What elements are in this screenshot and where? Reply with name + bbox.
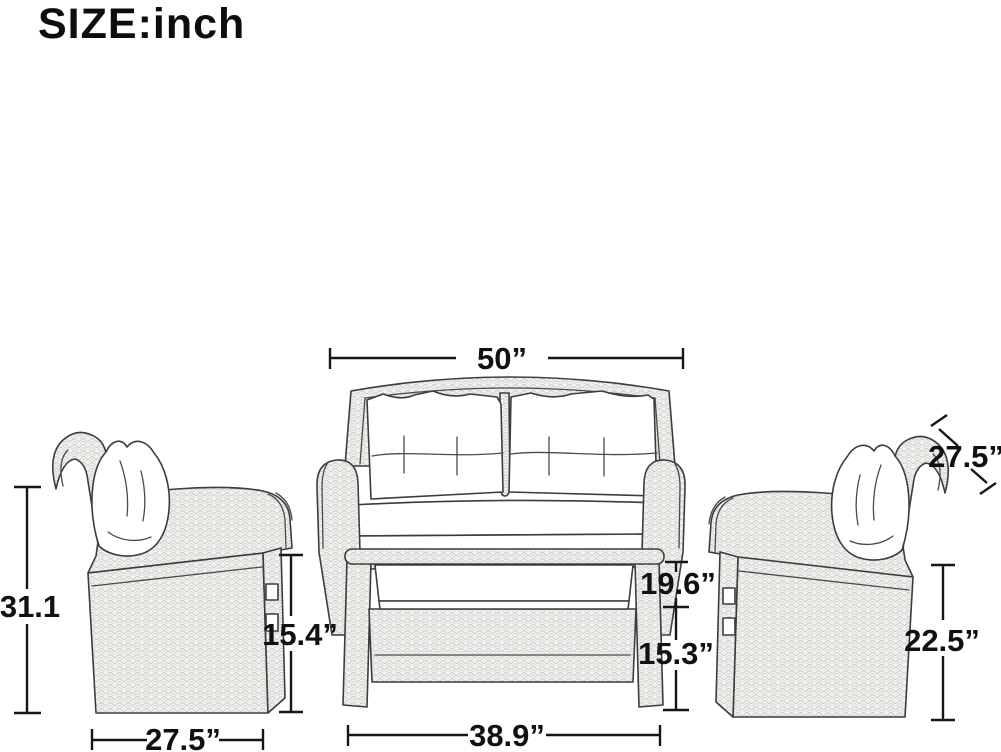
loveseat-pillow-left	[367, 391, 503, 499]
table-top-surface	[375, 565, 633, 601]
loveseat-seat-cushion-top	[352, 500, 658, 536]
dimension-right-chair-height: 22.5”	[904, 565, 980, 720]
dimension-label-table-height: 15.3”	[638, 636, 714, 671]
dimension-label-left-chair-depth: 27.5”	[145, 722, 221, 752]
dimension-loveseat-width: 50”	[330, 341, 683, 376]
size-diagram: SIZE:inch	[0, 0, 1001, 752]
loveseat-pillow-right	[509, 391, 657, 496]
coffee-table-drawing	[343, 549, 664, 707]
dimension-label-loveseat-seat-height: 19.6”	[640, 566, 716, 601]
right-chair-drawing	[709, 436, 948, 717]
dimension-left-chair-depth: 27.5”	[92, 722, 263, 752]
dimension-label-right-chair-back-height: 27.5”	[928, 439, 1001, 474]
table-leg-left	[343, 560, 371, 707]
chair-pillow	[92, 441, 169, 556]
table-top-band	[345, 549, 664, 564]
dimension-label-left-chair-total-height: 31.1	[0, 589, 60, 624]
chair-hinge-upper	[266, 584, 278, 600]
dimension-tick	[980, 483, 996, 494]
furniture-diagram: 50” 31.1 15.4” 27.5”	[0, 0, 1001, 752]
dimension-label-right-chair-height: 22.5”	[904, 623, 980, 658]
dimension-label-loveseat-width: 50”	[477, 341, 527, 376]
dimension-tick	[931, 415, 947, 426]
dimension-left-chair-total-height: 31.1	[0, 487, 60, 713]
left-chair-drawing	[53, 432, 292, 713]
dimension-label-left-chair-arm-height: 15.4”	[262, 617, 338, 652]
table-top-front-edge	[379, 601, 629, 609]
dimension-table-width: 38.9”	[348, 718, 660, 752]
table-lower-shelf	[369, 609, 636, 682]
dimension-label-table-width: 38.9”	[469, 718, 545, 752]
